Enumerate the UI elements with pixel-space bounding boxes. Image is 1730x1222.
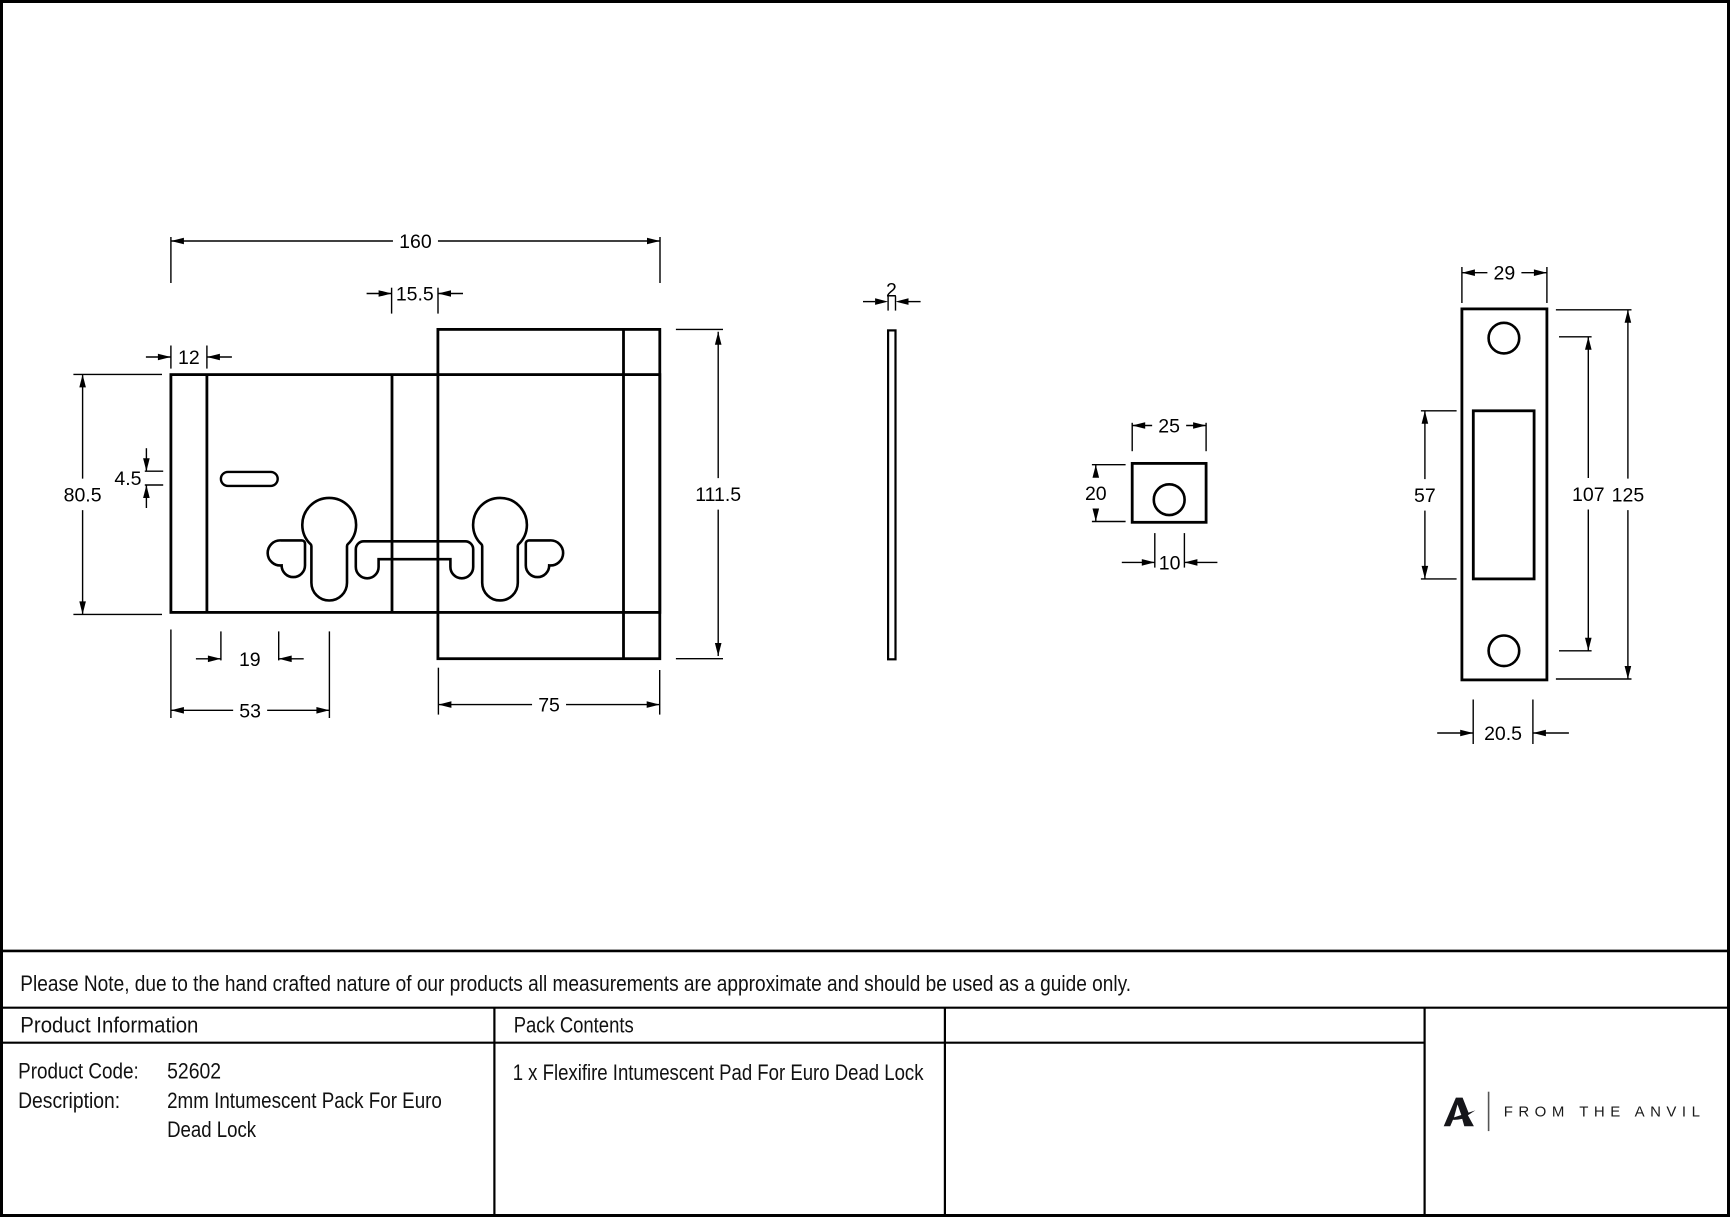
svg-text:Dead Lock: Dead Lock xyxy=(167,1117,257,1142)
svg-text:20: 20 xyxy=(1085,483,1107,505)
svg-text:2mm Intumescent Pack For Euro: 2mm Intumescent Pack For Euro xyxy=(167,1088,442,1113)
svg-text:111.5: 111.5 xyxy=(695,484,741,506)
svg-text:15.5: 15.5 xyxy=(396,284,434,306)
svg-text:29: 29 xyxy=(1494,263,1516,285)
svg-text:Product Code:: Product Code: xyxy=(18,1059,139,1084)
svg-text:12: 12 xyxy=(178,347,200,369)
svg-text:20.5: 20.5 xyxy=(1484,723,1522,745)
svg-text:2: 2 xyxy=(886,280,897,302)
svg-text:Description:: Description: xyxy=(18,1088,120,1113)
svg-text:Product Information: Product Information xyxy=(20,1013,198,1038)
svg-text:19: 19 xyxy=(239,649,261,671)
svg-text:160: 160 xyxy=(399,231,432,253)
svg-text:125: 125 xyxy=(1612,484,1645,506)
svg-text:53: 53 xyxy=(239,700,261,722)
svg-text:Pack Contents: Pack Contents xyxy=(514,1013,634,1038)
svg-text:FROM THE ANVIL: FROM THE ANVIL xyxy=(1504,1104,1706,1121)
svg-text:25: 25 xyxy=(1158,416,1180,438)
svg-text:10: 10 xyxy=(1159,552,1181,574)
svg-text:75: 75 xyxy=(538,695,560,717)
svg-text:4.5: 4.5 xyxy=(114,468,141,490)
svg-text:Please Note, due to the hand c: Please Note, due to the hand crafted nat… xyxy=(20,971,1131,996)
svg-text:107: 107 xyxy=(1572,484,1605,506)
svg-text:1 x Flexifire Intumescent Pad: 1 x Flexifire Intumescent Pad For Euro D… xyxy=(513,1060,925,1085)
svg-text:80.5: 80.5 xyxy=(64,484,102,506)
svg-text:52602: 52602 xyxy=(167,1059,221,1084)
svg-text:57: 57 xyxy=(1414,485,1436,507)
